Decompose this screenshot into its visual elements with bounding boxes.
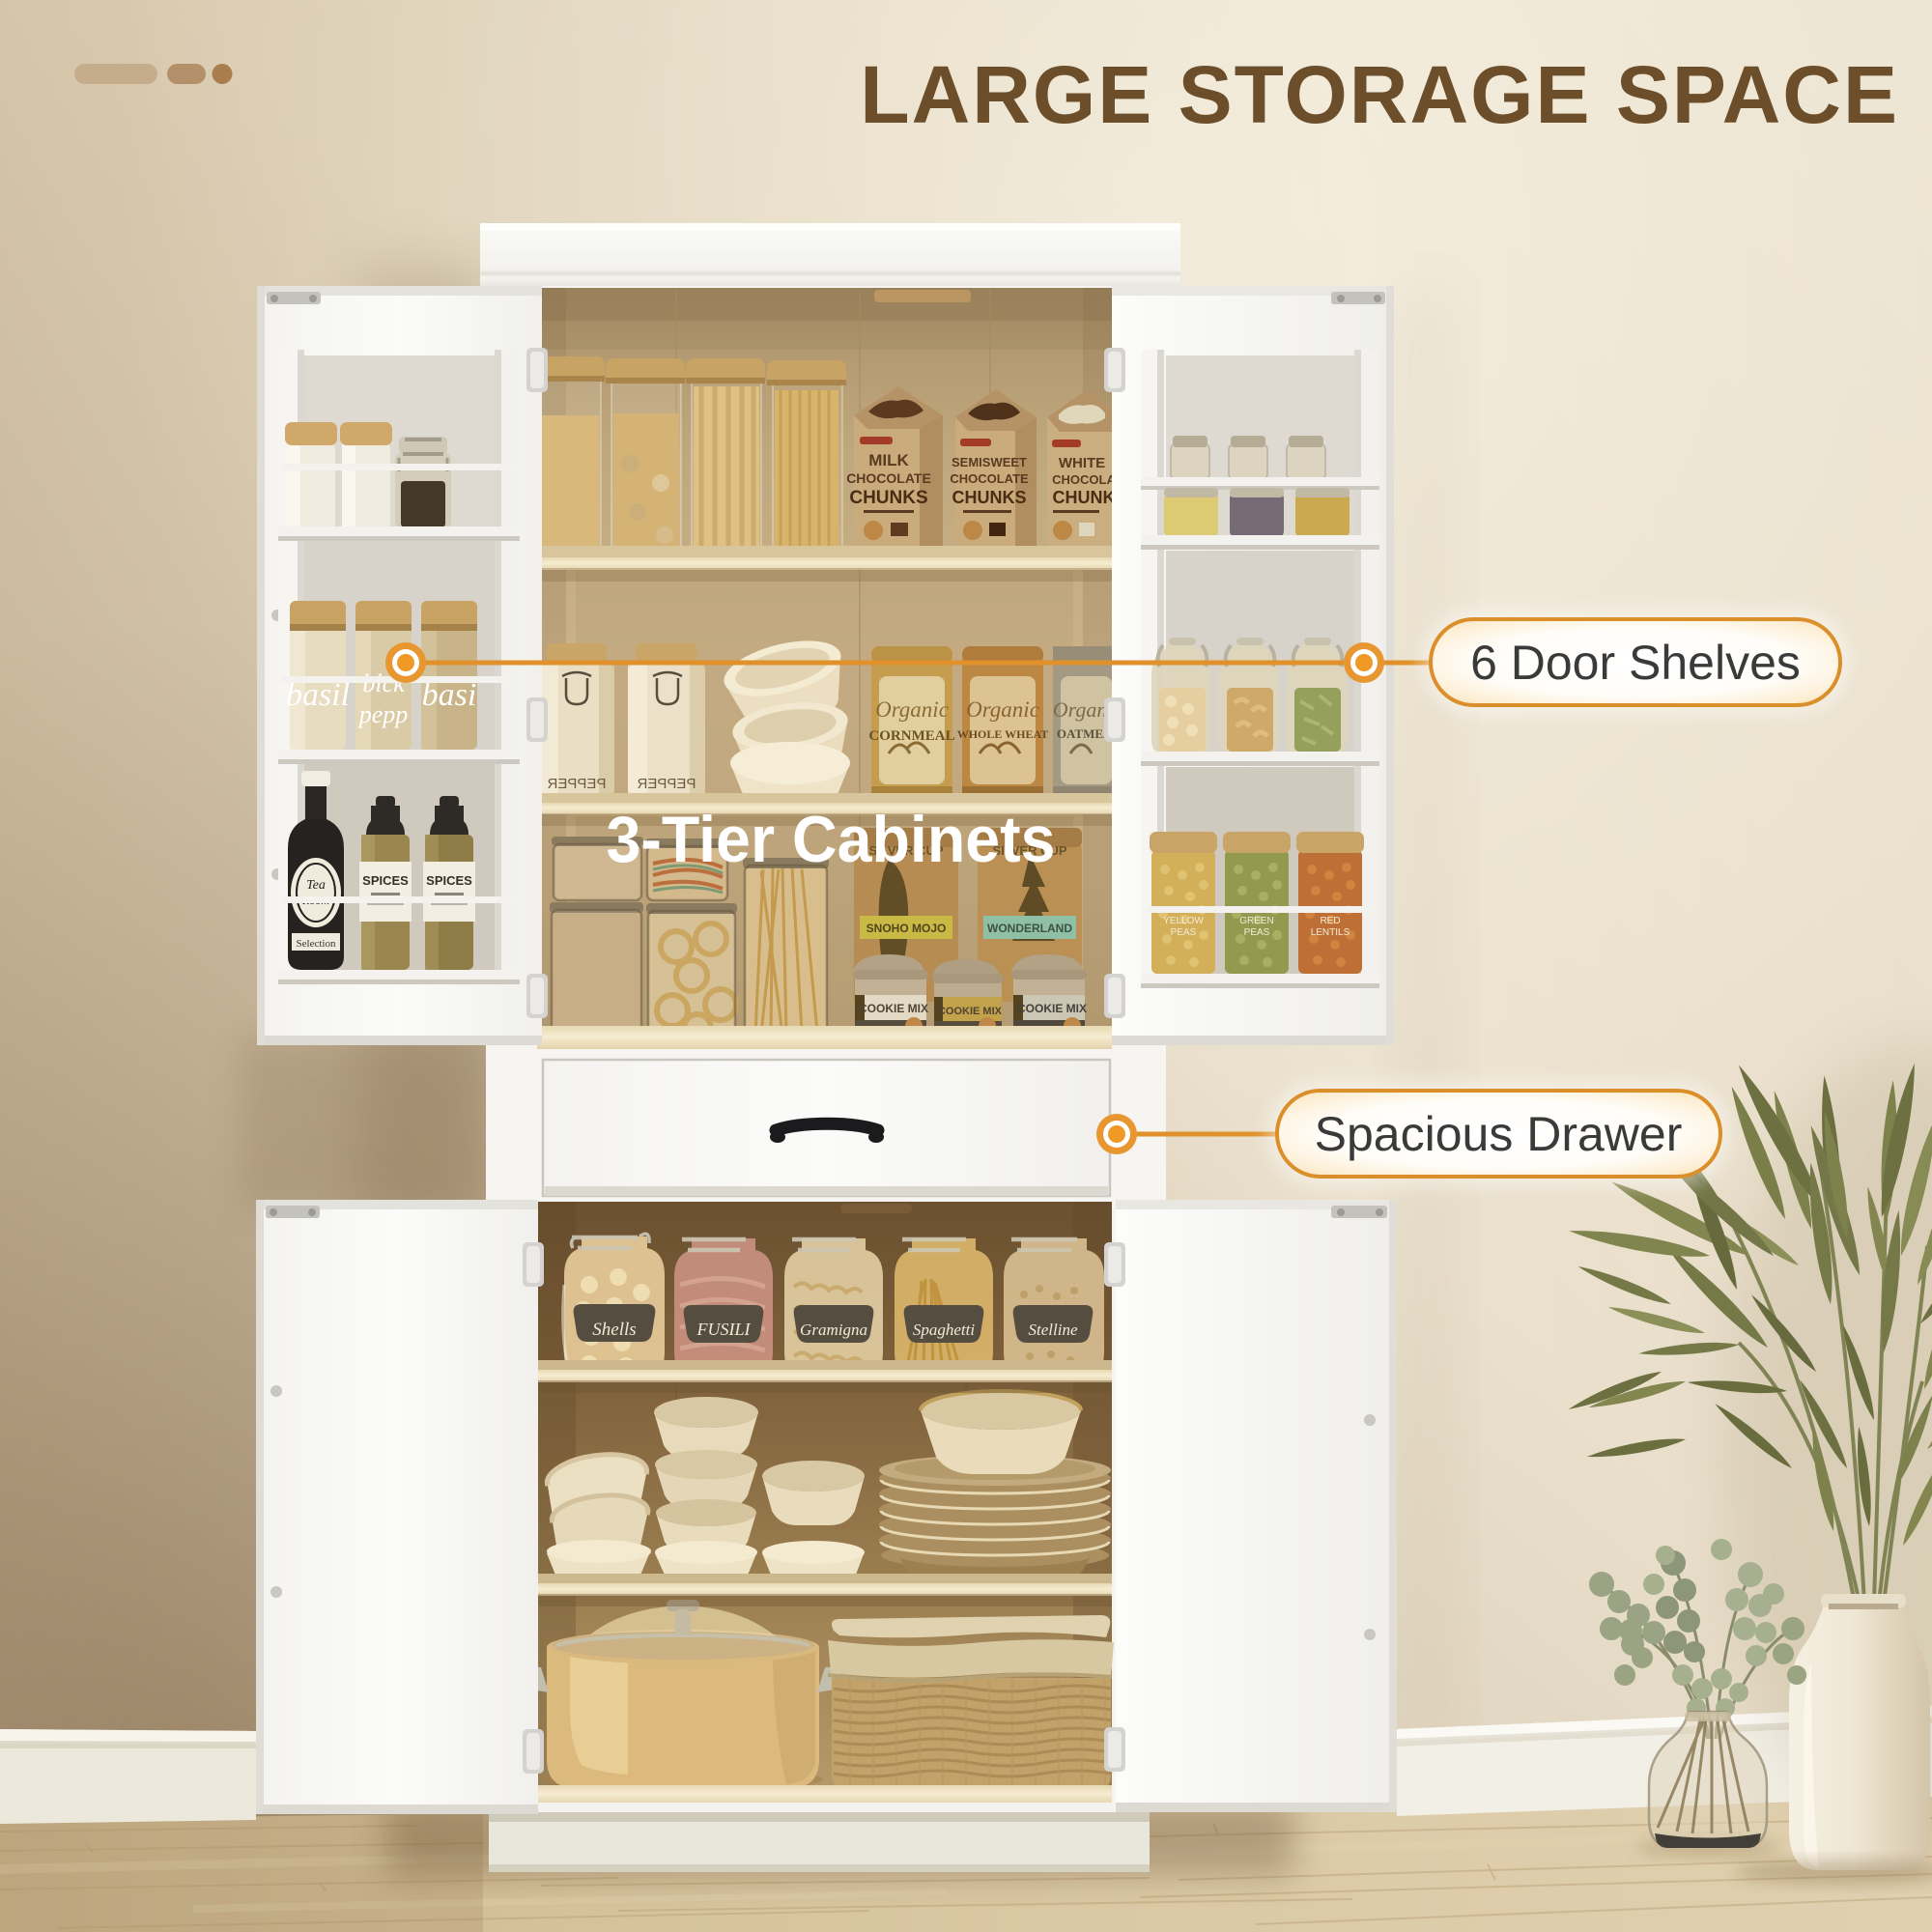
svg-text:SPICES: SPICES: [362, 873, 409, 888]
svg-text:Shells: Shells: [592, 1320, 636, 1340]
svg-text:YELLOW: YELLOW: [1163, 916, 1204, 926]
svg-text:FUSILI: FUSILI: [696, 1320, 752, 1339]
svg-text:Organic: Organic: [875, 697, 949, 722]
svg-text:WONDERLAND: WONDERLAND: [987, 922, 1072, 935]
svg-text:CHUNK: CHUNK: [1053, 488, 1116, 507]
svg-text:Spaghetti: Spaghetti: [913, 1321, 975, 1339]
svg-text:CHUNKS: CHUNKS: [952, 488, 1026, 507]
svg-text:SPICES: SPICES: [426, 873, 472, 888]
svg-text:3-Tier Cabinets: 3-Tier Cabinets: [607, 803, 1056, 876]
svg-text:CHUNKS: CHUNKS: [849, 488, 927, 508]
svg-text:WHOLE WHEAT: WHOLE WHEAT: [957, 727, 1049, 741]
svg-text:PEAS: PEAS: [1244, 927, 1270, 938]
svg-text:6 Door Shelves: 6 Door Shelves: [1470, 636, 1801, 690]
svg-text:GREEN: GREEN: [1239, 916, 1274, 926]
svg-text:CORNMEAL: CORNMEAL: [868, 728, 954, 744]
svg-text:PEAS: PEAS: [1171, 927, 1197, 938]
svg-text:CHOCOLATE: CHOCOLATE: [846, 470, 931, 486]
svg-text:PEPPER: PEPPER: [637, 776, 696, 792]
svg-text:LENTILS: LENTILS: [1311, 927, 1350, 938]
svg-text:CHOCOLATE: CHOCOLATE: [950, 471, 1029, 486]
svg-text:COOKIE MIX: COOKIE MIX: [938, 1006, 1003, 1017]
svg-text:SNOHO MOJO: SNOHO MOJO: [867, 922, 947, 935]
svg-text:Tea: Tea: [306, 878, 326, 893]
svg-text:Selection: Selection: [297, 938, 336, 950]
svg-text:Organic: Organic: [966, 697, 1039, 722]
svg-text:WHITE: WHITE: [1059, 455, 1105, 471]
svg-text:PEPPER: PEPPER: [547, 776, 606, 792]
svg-text:LARGE STORAGE SPACE: LARGE STORAGE SPACE: [860, 49, 1899, 140]
svg-text:SEMISWEET: SEMISWEET: [952, 455, 1027, 469]
svg-text:MILK: MILK: [868, 451, 909, 469]
svg-text:Spacious Drawer: Spacious Drawer: [1315, 1107, 1683, 1161]
svg-text:RED: RED: [1320, 916, 1340, 926]
svg-text:Gramigna: Gramigna: [800, 1321, 867, 1339]
svg-text:COOKIE MIX: COOKIE MIX: [859, 1002, 928, 1015]
svg-text:Stelline: Stelline: [1029, 1321, 1078, 1339]
svg-text:CHOCOLA: CHOCOLA: [1052, 472, 1116, 487]
svg-text:pepp: pepp: [357, 700, 409, 728]
svg-text:COOKIE MIX: COOKIE MIX: [1017, 1002, 1087, 1015]
